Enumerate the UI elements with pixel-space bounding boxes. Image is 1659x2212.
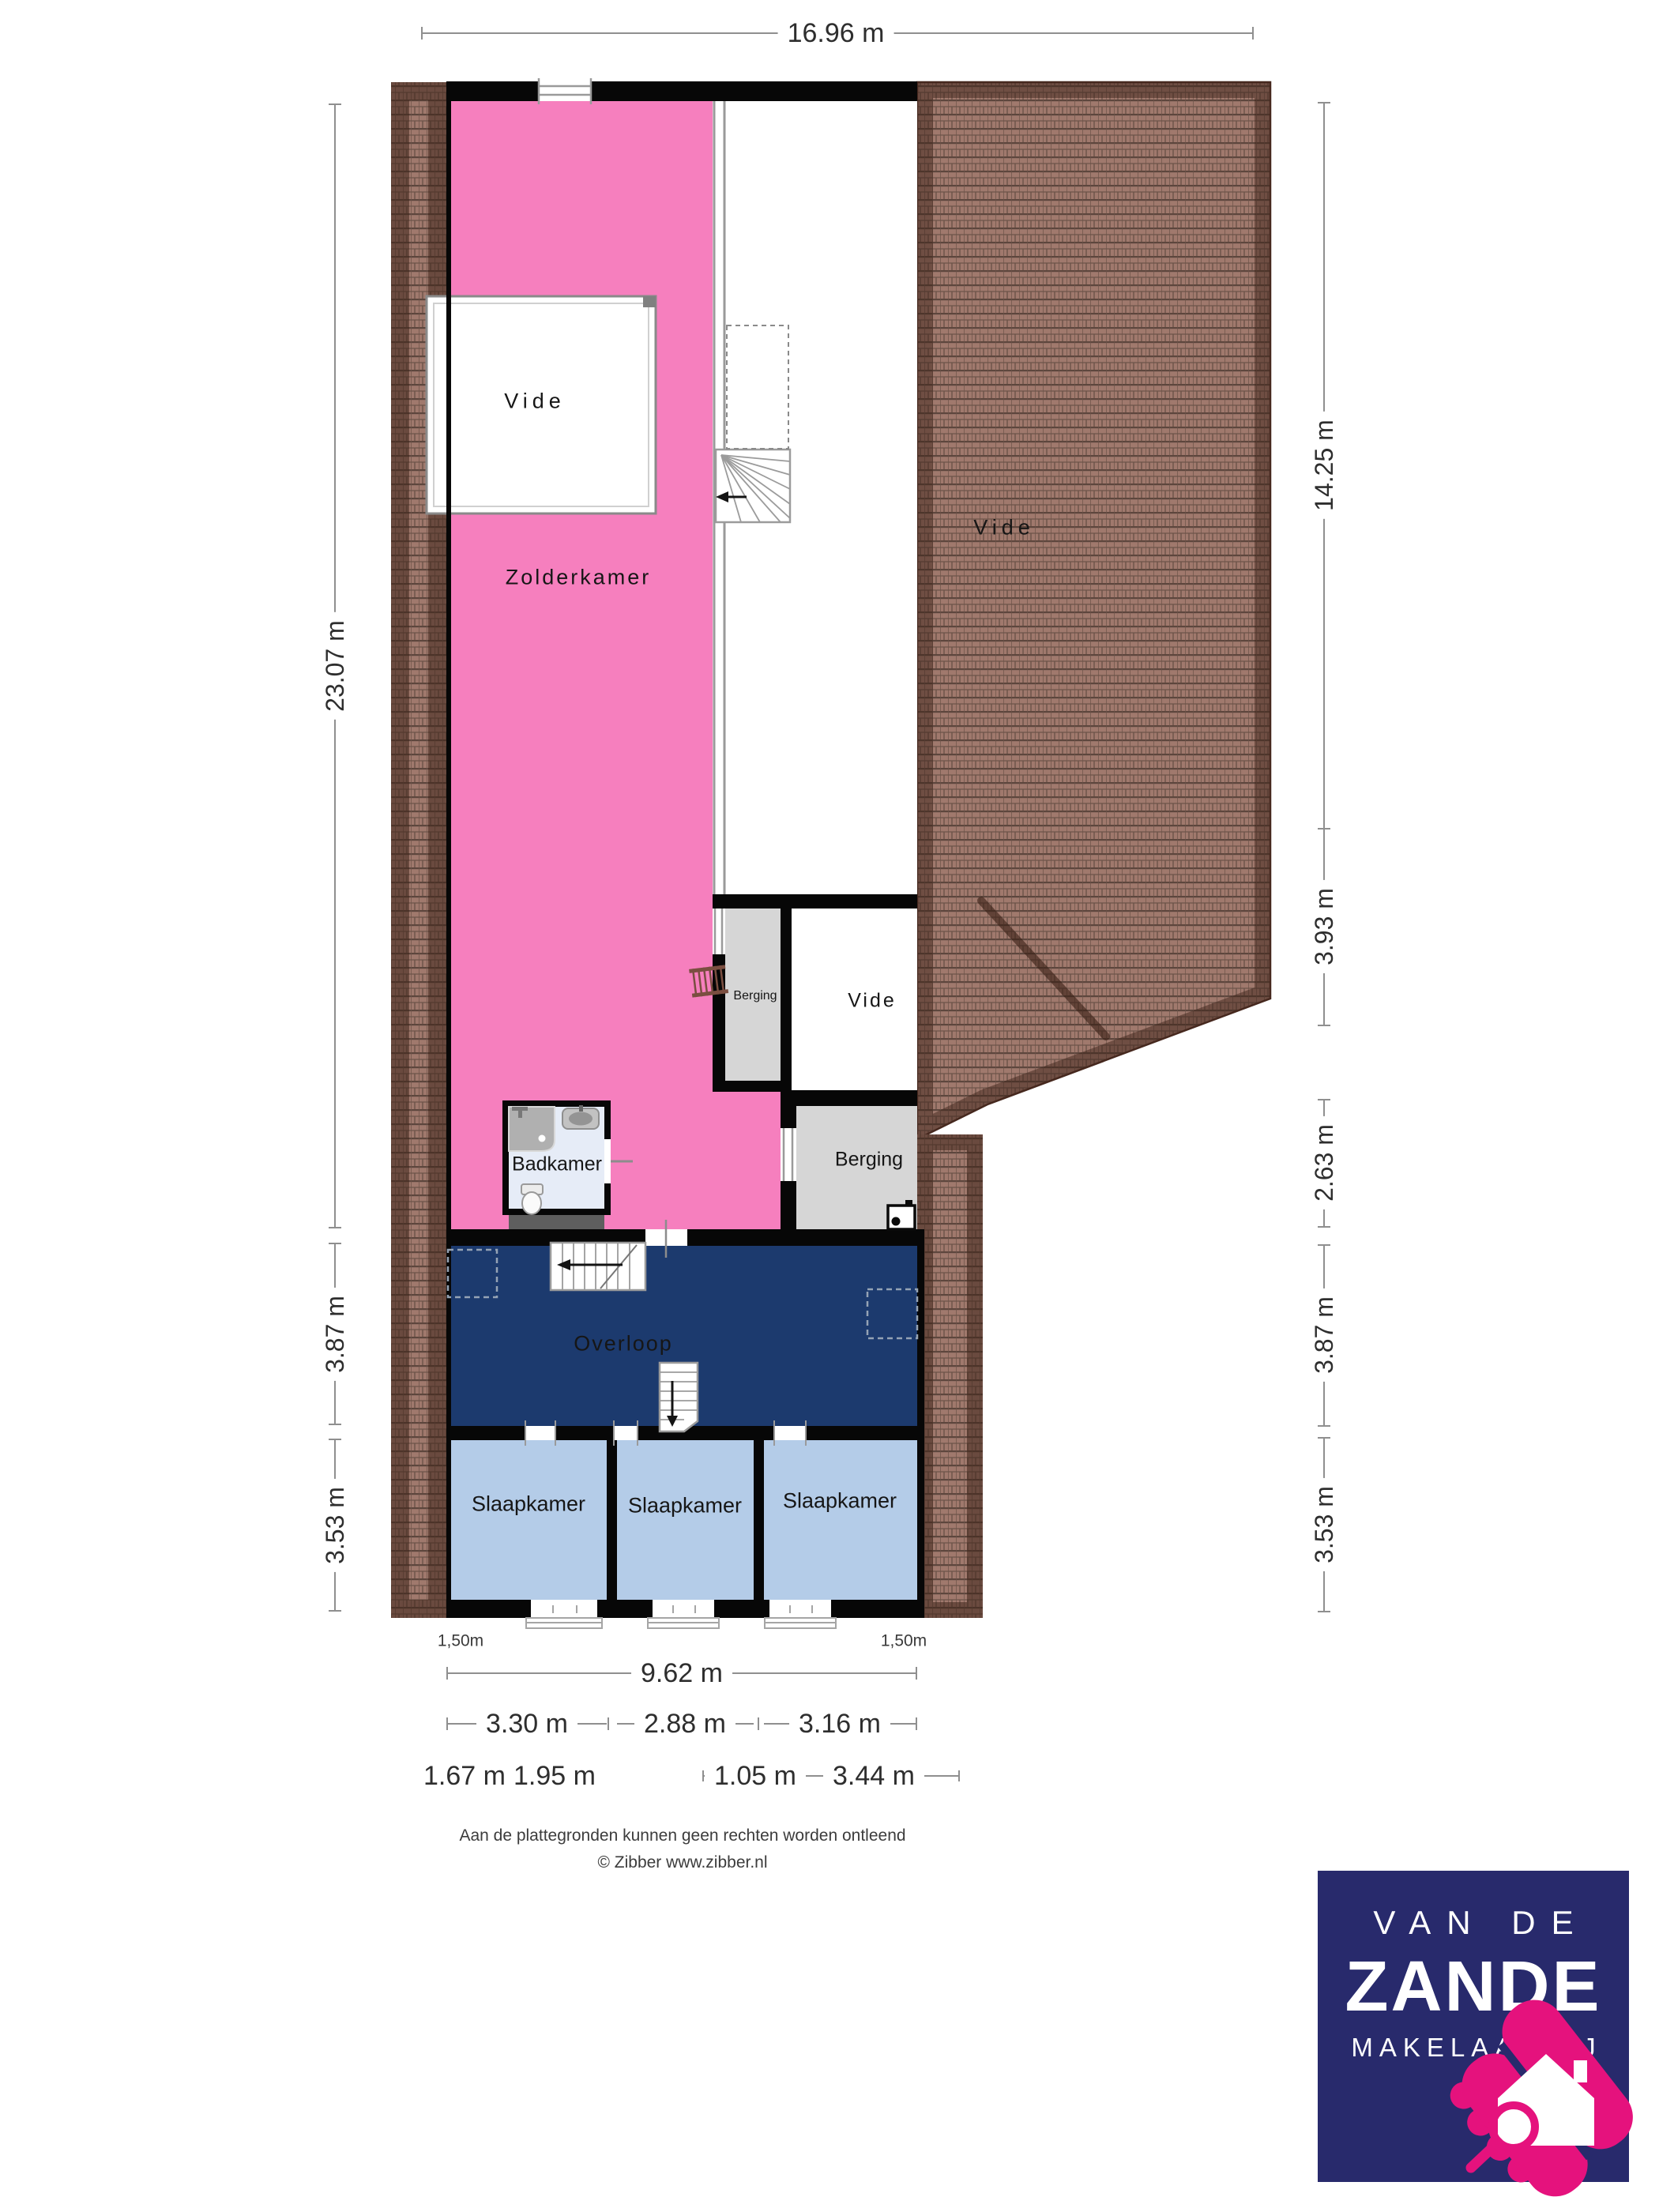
sink-icon xyxy=(562,1105,599,1129)
logo-line1: VAN DE xyxy=(1357,1904,1589,1942)
logo-line3: MAKELAARDIJ xyxy=(1345,2033,1601,2063)
floorplan-page: Zolderkamer Vide Vide Vide Berging Badka… xyxy=(0,0,1659,2212)
slaapkamer-left-floor xyxy=(451,1440,607,1600)
footer-copyright: © Zibber www.zibber.nl xyxy=(597,1853,767,1872)
dim-left-2: 3.53 m xyxy=(321,1479,349,1572)
room-label-slaapkamer-right: Slaapkamer xyxy=(783,1491,897,1512)
height-marker-left: 1,50m xyxy=(438,1633,483,1650)
roof-vide-area xyxy=(917,82,1270,1139)
overloop-stairs-up xyxy=(551,1243,645,1290)
dim-left-0: 23.07 m xyxy=(321,612,349,720)
logo-line2: ZANDE xyxy=(1345,1947,1602,2028)
room-label-berging-right: Berging xyxy=(835,1150,903,1170)
footer-disclaimer: Aan de plattegronden kunnen geen rechten… xyxy=(459,1826,905,1845)
room-label-slaapkamer-left: Slaapkamer xyxy=(472,1494,585,1515)
room-label-vide-right: Vide xyxy=(973,517,1035,539)
dim-detail-1: 1.95 m xyxy=(504,1761,605,1791)
dim-left-1: 3.87 m xyxy=(321,1288,349,1381)
agency-logo: VAN DE ZANDE MAKELAARDIJ xyxy=(1318,1871,1629,2182)
dim-top-width: 16.96 m xyxy=(778,18,894,48)
dim-bottom-total: 9.62 m xyxy=(631,1658,732,1688)
room-label-badkamer: Badkamer xyxy=(512,1155,602,1175)
winder-stairs-top xyxy=(716,450,790,522)
toilet-icon xyxy=(521,1184,543,1214)
zolderkamer-floor xyxy=(451,101,713,1229)
dim-right-1: 3.93 m xyxy=(1310,880,1338,973)
room-label-berging-small: Berging xyxy=(733,990,777,1003)
room-label-overloop: Overloop xyxy=(574,1334,673,1355)
dim-right-0: 14.25 m xyxy=(1310,412,1338,519)
slaapkamer-right-floor xyxy=(764,1440,917,1600)
roof-strip-right xyxy=(917,1134,983,1618)
badkamer-threshold xyxy=(509,1215,604,1229)
height-marker-right: 1,50m xyxy=(881,1633,927,1650)
dim-detail-0: 1.67 m xyxy=(414,1761,515,1791)
dim-right-4: 3.53 m xyxy=(1310,1478,1338,1571)
dim-bottom-room-0: 3.30 m xyxy=(476,1709,577,1739)
dim-right-3: 3.87 m xyxy=(1310,1288,1338,1382)
shower-icon xyxy=(509,1107,555,1151)
dim-detail-2: 1.05 m xyxy=(705,1761,806,1791)
room-label-slaapkamer-middle: Slaapkamer xyxy=(628,1495,742,1517)
dim-bottom-room-2: 3.16 m xyxy=(789,1709,890,1739)
room-label-vide-middle: Vide xyxy=(848,991,897,1011)
room-label-zolderkamer: Zolderkamer xyxy=(506,567,652,589)
dim-bottom-room-1: 2.88 m xyxy=(634,1709,735,1739)
zolderkamer-floor-extension xyxy=(713,1092,781,1229)
slaapkamer-middle-floor xyxy=(617,1440,754,1600)
boiler-icon xyxy=(888,1200,915,1229)
overloop-stairs-down xyxy=(660,1363,698,1431)
room-label-vide-top: Vide xyxy=(504,391,566,412)
dim-detail-3: 3.44 m xyxy=(823,1761,924,1791)
dim-right-2: 2.63 m xyxy=(1310,1116,1338,1209)
